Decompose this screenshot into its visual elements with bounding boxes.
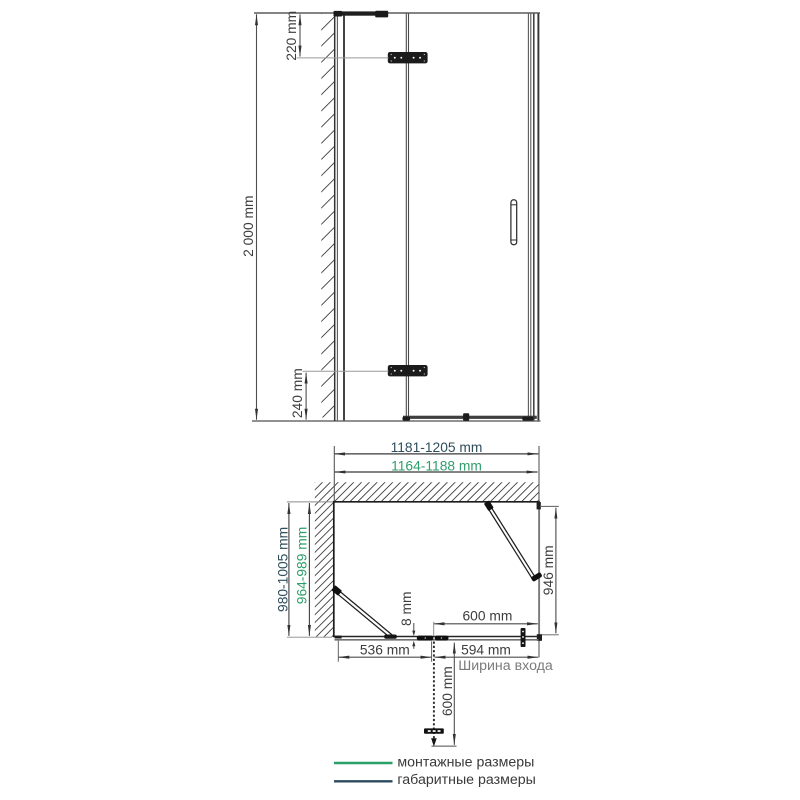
svg-text:1181-1205 mm: 1181-1205 mm (391, 440, 483, 455)
svg-text:964-989 mm: 964-989 mm (294, 527, 309, 604)
svg-text:Ширина входа: Ширина входа (458, 658, 553, 674)
svg-text:1164-1188 mm: 1164-1188 mm (391, 458, 482, 473)
svg-text:8 mm: 8 mm (399, 592, 414, 627)
svg-text:594 mm: 594 mm (461, 643, 511, 658)
svg-text:монтажные размеры: монтажные размеры (397, 755, 534, 771)
svg-text:2 000 mm: 2 000 mm (241, 196, 256, 257)
svg-text:600 mm: 600 mm (440, 666, 455, 716)
svg-text:габаритные размеры: габаритные размеры (397, 772, 535, 788)
svg-text:220 mm: 220 mm (284, 11, 299, 61)
svg-text:536 mm: 536 mm (360, 643, 410, 658)
svg-text:946 mm: 946 mm (541, 545, 556, 595)
svg-text:600 mm: 600 mm (462, 609, 512, 624)
svg-text:980-1005 mm: 980-1005 mm (275, 527, 290, 612)
svg-text:240 mm: 240 mm (290, 368, 305, 418)
